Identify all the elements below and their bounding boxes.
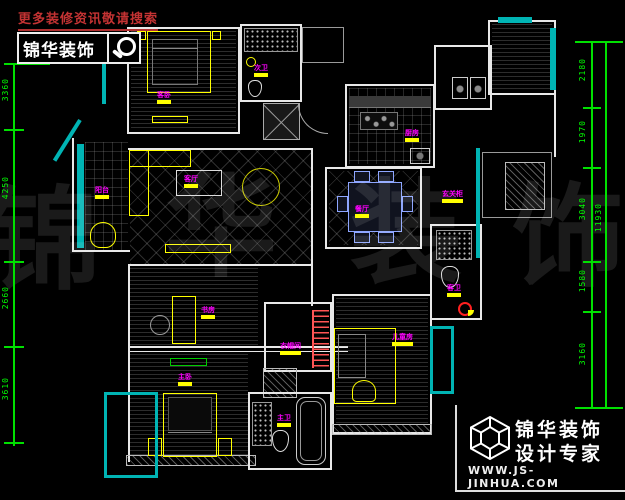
magnifier-icon (109, 34, 139, 62)
brand-name: 锦华装饰 (19, 36, 107, 61)
dim-right-total: 11930 (594, 203, 603, 232)
room-label-master-bath: 主卫 (277, 414, 291, 427)
pillow-line (152, 48, 198, 49)
footer-brand-line1: 锦华装饰 (515, 415, 603, 442)
bed-blanket (338, 334, 366, 378)
bay-window (104, 392, 158, 478)
washing-machine (452, 77, 468, 99)
room-label-balcony: 阳台 (95, 186, 109, 199)
bench (152, 116, 188, 123)
footer-cube-logo-icon (466, 414, 514, 462)
entry-door-arc (298, 104, 328, 134)
dim-right-2: 3040 (578, 197, 587, 220)
footer-frame-line (455, 405, 457, 492)
dim-tick (583, 167, 601, 169)
shower-mat (244, 28, 298, 52)
room-label-kitchen: 厨房 (405, 129, 419, 142)
bathtub (296, 397, 326, 465)
brand-logo-box: 锦华装饰 (17, 32, 141, 64)
dim-tick (583, 311, 601, 313)
dim-right-3: 1580 (578, 269, 587, 292)
dim-tick (4, 129, 24, 131)
dim-tick (4, 346, 24, 348)
dim-tick (575, 41, 623, 43)
window-band (102, 62, 106, 104)
dim-left-3: 3610 (1, 377, 10, 400)
dim-right-0: 2180 (578, 58, 587, 81)
elevator-shaft (263, 103, 300, 140)
dining-chair (337, 196, 348, 212)
room-label-kids-room: 儿童房 (392, 333, 413, 346)
bed-comforter (152, 39, 198, 85)
dim-line-right-total (605, 42, 607, 409)
watermark-char: 饰 (512, 182, 624, 294)
floor-plan: 更多装修资讯敬请搜索 锦华装饰 锦 华 装 饰 (0, 0, 625, 500)
room-label-second-bath: 次卫 (254, 64, 268, 77)
room-label-cloakroom: 衣帽间 (280, 342, 301, 355)
bottom-wall (332, 424, 432, 435)
room-label-study: 书房 (201, 306, 215, 319)
dim-right-4: 3160 (578, 342, 587, 365)
dim-line-left (13, 64, 15, 446)
desk-chair (150, 315, 170, 335)
dim-line-right-segments (591, 42, 593, 409)
desk (172, 296, 196, 344)
watermark-char: 锦 (0, 185, 100, 297)
top-right-room-floor (492, 24, 552, 91)
dim-right-1: 1970 (578, 120, 587, 143)
dim-tick (583, 107, 601, 109)
dim-tick (575, 407, 623, 409)
wall (311, 266, 313, 306)
dim-left-1: 4250 (1, 176, 10, 199)
window-band (476, 148, 480, 258)
room-label-living-room: 客厅 (184, 175, 198, 188)
room-label-guest-bath: 客卫 (447, 284, 461, 297)
blanket-line (168, 432, 212, 433)
stove (360, 112, 398, 130)
dim-left-0: 3360 (1, 78, 10, 101)
dim-tick (4, 261, 24, 263)
kitchen-counter (349, 96, 431, 108)
dim-tick (4, 442, 24, 444)
washing-machine (470, 77, 486, 99)
flue-block (302, 27, 344, 63)
footer-frame-line (455, 490, 625, 492)
wall (128, 266, 130, 356)
room-label-master-bedroom: 主卧 (178, 373, 192, 386)
shower-mat (252, 402, 272, 446)
nightstand (218, 438, 232, 456)
room-label-guest-bedroom: 客卧 (157, 91, 171, 104)
kitchen-sink (410, 148, 430, 164)
wall (311, 148, 313, 266)
footer-brand-line2: 设计专家 (515, 439, 603, 466)
clothes-hangers (312, 310, 329, 368)
window-band (550, 28, 556, 90)
bed-comforter (168, 397, 212, 431)
wall (554, 92, 556, 157)
bay-window (430, 326, 454, 394)
footer-website: WWW.JS-JINHUA.COM (468, 464, 625, 490)
watermark-char: 华 (165, 172, 277, 284)
room-label-hall-cabinet: 玄关柜 (442, 190, 463, 203)
room-label-dining-room: 餐厅 (355, 205, 369, 218)
console-table (170, 358, 207, 366)
dim-left-2: 2660 (1, 286, 10, 309)
nightstand (212, 31, 221, 40)
chair (352, 380, 376, 402)
window-band (498, 17, 532, 23)
dim-tick (583, 261, 601, 263)
promo-text: 更多装修资讯敬请搜索 (18, 8, 158, 31)
